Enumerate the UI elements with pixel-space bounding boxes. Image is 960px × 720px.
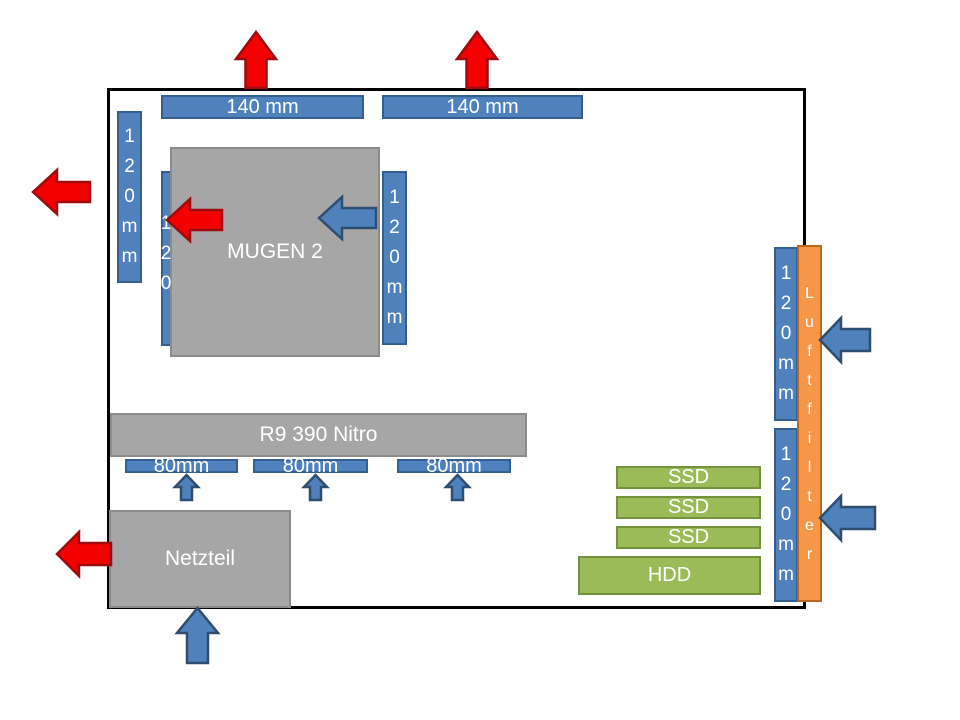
- cpu-rear-fan-120mm: 120mm: [382, 171, 407, 345]
- top-fan-2-label: 140 mm: [446, 96, 518, 119]
- ssd-2-label: SSD: [668, 496, 709, 519]
- front-intake-arrow-1-icon: [819, 317, 871, 363]
- gpu-fan-2-intake-arrow-icon: [303, 474, 328, 501]
- air-filter: Luftfilter: [797, 245, 822, 602]
- cpu-intake-arrow-icon: [318, 196, 377, 240]
- exhaust-arrow-rear-icon: [32, 169, 91, 215]
- ssd-3: SSD: [616, 526, 761, 549]
- top-fan-1-label: 140 mm: [226, 96, 298, 119]
- front-fan-1-120mm: 120mm: [774, 247, 798, 421]
- exhaust-arrow-up-2-icon: [456, 31, 498, 89]
- psu-intake-arrow-icon: [176, 607, 219, 664]
- gpu-card: R9 390 Nitro: [110, 413, 527, 457]
- hdd-label: HDD: [648, 564, 691, 587]
- psu-label: Netzteil: [165, 547, 235, 571]
- hdd: HDD: [578, 556, 761, 595]
- gpu-fan-1-intake-arrow-icon: [174, 474, 199, 501]
- gpu-fan-3-intake-arrow-icon: [445, 474, 470, 501]
- rear-fan-120mm: 120mm: [117, 111, 142, 283]
- cpu-cooler-label: MUGEN 2: [227, 240, 323, 264]
- ssd-1-label: SSD: [668, 466, 709, 489]
- gpu-fan-2: 80mm: [253, 459, 368, 473]
- exhaust-arrow-up-1-icon: [235, 31, 277, 89]
- cpu-exhaust-arrow-icon: [166, 198, 223, 242]
- psu-exhaust-arrow-icon: [56, 531, 112, 577]
- ssd-2: SSD: [616, 496, 761, 519]
- front-fan-2-120mm: 120mm: [774, 428, 798, 602]
- cpu-cooler: MUGEN 2: [170, 147, 380, 357]
- psu: Netzteil: [109, 510, 291, 608]
- top-fan-2: 140 mm: [382, 95, 583, 119]
- gpu-fan-1: 80mm: [125, 459, 238, 473]
- gpu-label: R9 390 Nitro: [260, 423, 378, 447]
- gpu-fan-3: 80mm: [397, 459, 511, 473]
- front-intake-arrow-2-icon: [819, 495, 876, 541]
- ssd-1: SSD: [616, 466, 761, 489]
- top-fan-1: 140 mm: [161, 95, 364, 119]
- ssd-3-label: SSD: [668, 526, 709, 549]
